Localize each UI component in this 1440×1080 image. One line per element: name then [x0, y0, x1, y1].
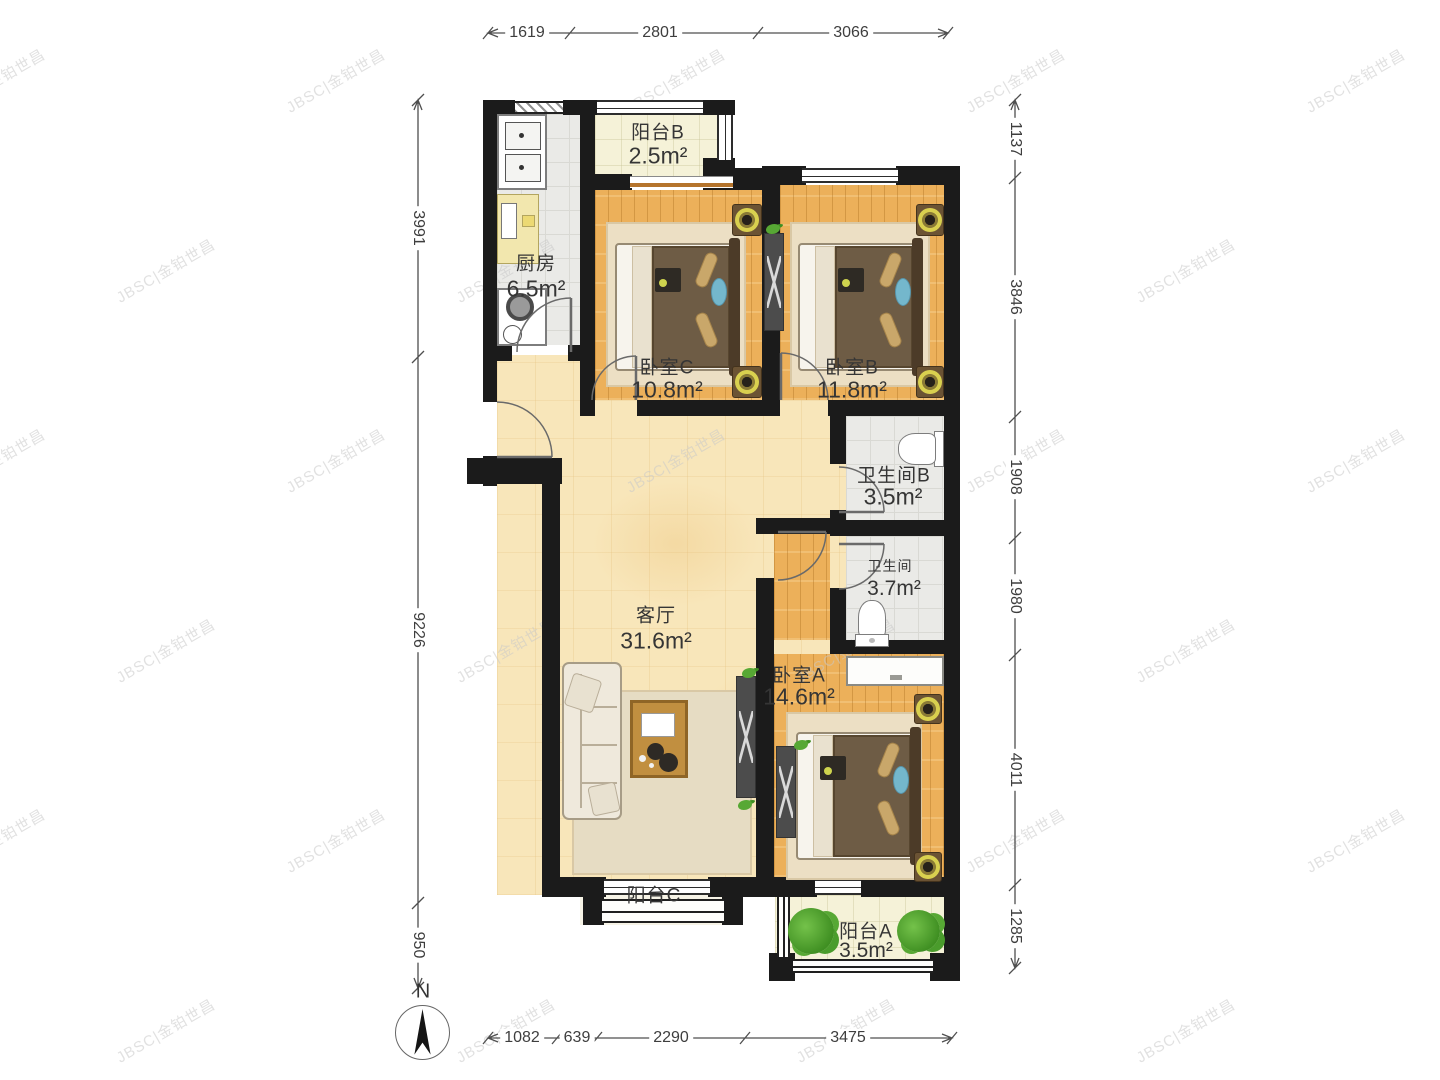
dim-right-4: 1980: [1006, 574, 1024, 618]
dim-top-2: 2801: [638, 24, 682, 42]
compass-north-label: N: [416, 981, 430, 1004]
door-arcs: [497, 298, 884, 589]
room-name-balcony-c: 阳台C: [627, 881, 682, 908]
dimension-lines: [412, 27, 1021, 1044]
dim-left-2: 9226: [409, 608, 427, 652]
room-area-balcony-a: 3.5m²: [839, 939, 893, 963]
room-area-balcony-b: 2.5m²: [629, 143, 688, 170]
door-leaves: [497, 298, 884, 544]
dim-bottom-3: 2290: [649, 1029, 693, 1047]
dim-left-3: 950: [409, 928, 427, 963]
dim-right-3: 1908: [1006, 455, 1024, 499]
room-area-bedroom-a: 14.6m²: [763, 684, 835, 711]
room-area-bedroom-b: 11.8m²: [817, 377, 887, 404]
dim-right-5: 4011: [1006, 749, 1024, 791]
room-name-bathroom: 卫生间: [868, 556, 913, 576]
dim-bottom-4: 3475: [826, 1029, 870, 1047]
compass: N: [380, 975, 480, 1075]
dim-bottom-1: 1082: [500, 1029, 544, 1047]
room-name-bedroom-b: 卧室B: [825, 353, 879, 380]
floor-plan-canvas: JBSC|金铂世昌JBSC|金铂世昌JBSC|金铂世昌JBSC|金铂世昌JBSC…: [0, 0, 1440, 1080]
room-name-balcony-b: 阳台B: [631, 118, 685, 145]
dim-top-3: 3066: [829, 24, 873, 42]
dim-right-6: 1285: [1006, 904, 1024, 948]
dim-top-1: 1619: [505, 24, 549, 42]
room-area-bathroom: 3.7m²: [867, 577, 921, 601]
room-name-kitchen: 厨房: [516, 249, 556, 276]
dim-right-1: 1137: [1006, 118, 1024, 160]
room-area-bedroom-c: 10.8m²: [631, 377, 703, 404]
plan-lines: [0, 0, 1440, 1080]
room-area-kitchen: 6.5m²: [507, 276, 566, 303]
room-name-bedroom-c: 卧室C: [640, 353, 695, 380]
room-name-living-room: 客厅: [636, 601, 676, 628]
room-area-bathroom-b: 3.5m²: [864, 484, 923, 511]
room-area-living-room: 31.6m²: [620, 628, 692, 655]
dim-right-2: 3846: [1006, 275, 1024, 319]
dim-bottom-2: 639: [560, 1029, 595, 1047]
dim-left-1: 3991: [409, 206, 427, 250]
